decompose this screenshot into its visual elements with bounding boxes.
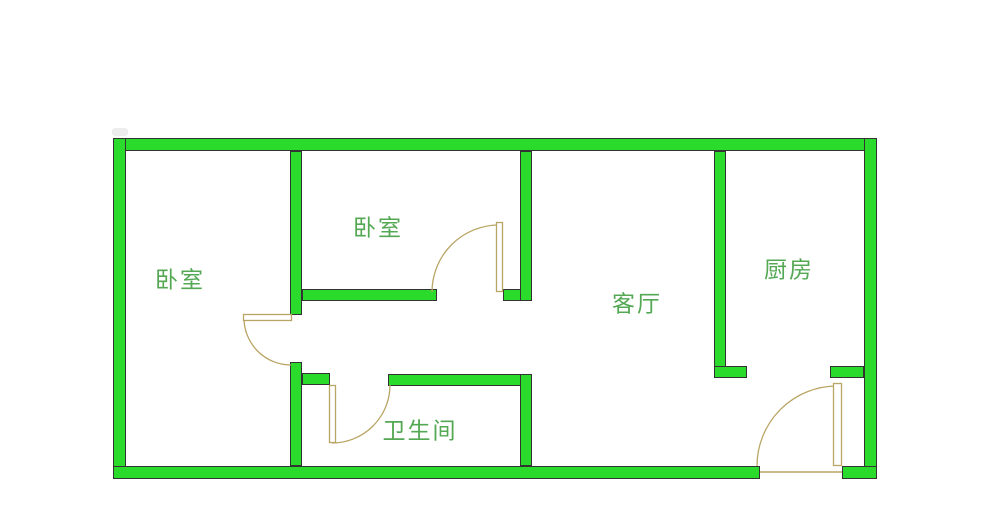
wall-outer-bottom-left <box>114 467 760 479</box>
floorplan-drawing <box>0 0 1000 529</box>
wall-bathroom-right <box>521 375 532 466</box>
wall-outer-top <box>114 139 877 151</box>
wall-outer-bottom-right <box>843 467 877 479</box>
door-entrance-arc <box>757 386 837 466</box>
room-label-bedroom-1: 卧室 <box>155 270 205 293</box>
wall-bedroom2-bottom-left <box>303 290 437 301</box>
wall-outer-right <box>865 139 877 479</box>
door-bedroom-2-leaf <box>497 223 503 292</box>
wall-bedroom1-right-upper <box>291 152 302 315</box>
wall-outer-left <box>114 139 126 479</box>
door-bathroom-leaf <box>330 386 336 443</box>
door-bedroom-2-arc <box>432 225 499 292</box>
door-bedroom-1-leaf <box>244 315 292 321</box>
door-bedroom-1-arc <box>244 318 291 365</box>
wall-bathroom-top-stub <box>303 374 330 385</box>
wall-kitchen-bottom-right <box>831 367 864 378</box>
room-label-bedroom-2: 卧室 <box>353 218 403 241</box>
wall-kitchen-bottom-left <box>715 367 747 378</box>
room-label-living-room: 客厅 <box>612 294 662 317</box>
wall-bedroom2-living <box>521 152 532 301</box>
door-bathroom-arc <box>332 385 390 443</box>
wall-living-kitchen <box>715 152 726 378</box>
door-entrance-leaf <box>834 384 842 466</box>
floorplan-canvas: 卧室 卧室 客厅 厨房 卫生间 <box>0 0 1000 529</box>
room-label-bathroom: 卫生间 <box>383 421 458 444</box>
corner-smudge <box>112 128 128 136</box>
room-label-kitchen: 厨房 <box>764 260 814 283</box>
wall-bedroom1-right-lower <box>291 363 302 466</box>
wall-bathroom-top <box>389 375 532 386</box>
